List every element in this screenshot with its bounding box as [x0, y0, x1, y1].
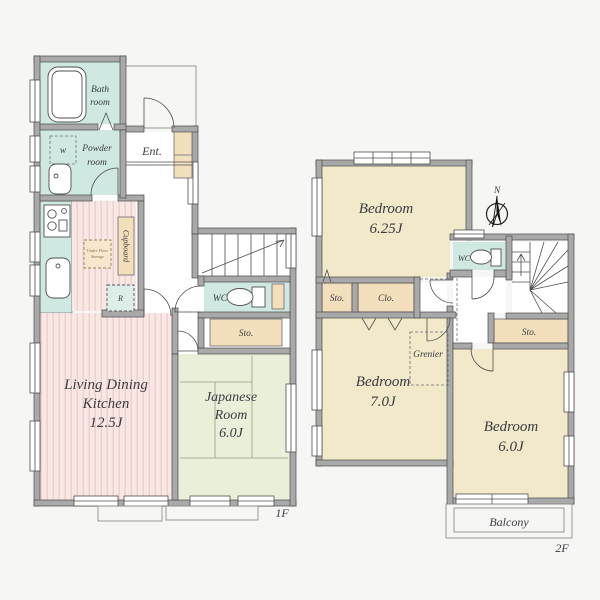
floor-plan-1f: Bathroom Powderroom w Ent. Cupboard R Un… — [30, 56, 296, 521]
toilet-icon-1f — [227, 287, 265, 307]
stove-icon — [44, 205, 70, 237]
washer-label: w — [60, 146, 67, 156]
grenier-label: Grenier — [413, 350, 443, 360]
shoe-cabinet — [174, 132, 192, 178]
compass-icon — [487, 196, 508, 227]
wc-label-1f: WC — [213, 294, 228, 304]
entrance-porch — [122, 66, 196, 128]
closet-label: Clo. — [378, 294, 394, 304]
cupboard-label: Cupboard — [122, 230, 131, 263]
storage-left-label: Sto. — [330, 294, 345, 304]
entrance-label: Ent. — [141, 144, 162, 158]
kitchen-sink-icon — [46, 258, 70, 298]
storage-label-1f: Sto. — [239, 329, 254, 339]
terrace-outlines — [98, 506, 258, 521]
bedroom-625-nook — [450, 166, 466, 236]
powder-sink-icon — [49, 164, 71, 194]
balcony-label: Balcony — [489, 515, 529, 529]
compass-north-label: N — [493, 186, 501, 196]
wc-counter-1f — [272, 284, 284, 309]
floor1-label: 1F — [275, 506, 289, 520]
floor-plan-2f: N Bedroom6.25J WC Sto. Clo. Sto. Grenier… — [312, 152, 574, 555]
wc-label-2f: WC — [458, 254, 471, 263]
floor2-label: 2F — [555, 541, 569, 555]
floorplan-drawing: Bathroom Powderroom w Ent. Cupboard R Un… — [0, 0, 600, 600]
floorplan-canvas: Bathroom Powderroom w Ent. Cupboard R Un… — [0, 0, 600, 600]
bathtub-icon — [48, 67, 86, 122]
storage-right-label: Sto. — [522, 328, 537, 338]
refrigerator-label: R — [117, 294, 123, 303]
